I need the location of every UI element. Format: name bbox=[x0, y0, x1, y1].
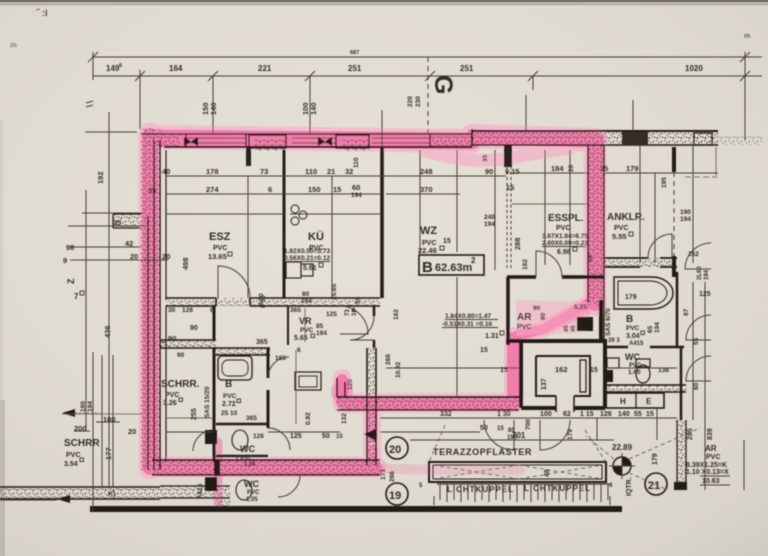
svg-text:PVC: PVC bbox=[300, 327, 314, 334]
svg-text:A615: A615 bbox=[197, 483, 204, 499]
svg-text:126: 126 bbox=[253, 433, 264, 440]
svg-text:194: 194 bbox=[87, 401, 94, 412]
svg-text:50: 50 bbox=[480, 425, 488, 432]
svg-text:15: 15 bbox=[590, 367, 598, 374]
svg-text:20: 20 bbox=[389, 444, 401, 456]
svg-text:90: 90 bbox=[190, 325, 198, 332]
svg-text:137: 137 bbox=[541, 378, 548, 390]
svg-text:42: 42 bbox=[125, 239, 133, 248]
svg-text:85: 85 bbox=[316, 323, 324, 330]
svg-text:6: 6 bbox=[119, 63, 122, 69]
svg-text:60: 60 bbox=[693, 382, 700, 390]
svg-text:73: 73 bbox=[345, 309, 351, 316]
svg-text:22.46: 22.46 bbox=[418, 246, 437, 255]
svg-text:TERAZZOPFLASTER: TERAZZOPFLASTER bbox=[433, 447, 532, 457]
svg-text:B: B bbox=[626, 314, 633, 325]
svg-text:WC: WC bbox=[244, 479, 259, 489]
svg-text:248: 248 bbox=[420, 167, 433, 176]
svg-text:195: 195 bbox=[661, 177, 668, 188]
svg-text:39 3: 39 3 bbox=[608, 338, 620, 344]
svg-text:15: 15 bbox=[480, 347, 488, 354]
svg-text:2.60X0.09=0.23: 2.60X0.09=0.23 bbox=[542, 240, 588, 247]
svg-text:3.04: 3.04 bbox=[626, 333, 640, 340]
svg-text:20: 20 bbox=[128, 427, 136, 436]
svg-text:251: 251 bbox=[348, 64, 362, 73]
svg-text:266: 266 bbox=[389, 471, 396, 482]
svg-text:126: 126 bbox=[600, 411, 612, 418]
svg-text:ESZ: ESZ bbox=[209, 231, 231, 243]
svg-text:251: 251 bbox=[460, 64, 474, 73]
svg-text:1.06: 1.06 bbox=[244, 462, 256, 468]
svg-text:E: E bbox=[646, 397, 652, 406]
svg-text:240: 240 bbox=[484, 214, 495, 221]
svg-text:16: 16 bbox=[352, 309, 358, 316]
svg-text:268: 268 bbox=[385, 354, 392, 365]
svg-text:WC: WC bbox=[240, 444, 255, 454]
svg-text:365: 365 bbox=[246, 415, 257, 422]
svg-text:ANKLR.: ANKLR. bbox=[607, 212, 645, 223]
svg-text:179: 179 bbox=[625, 294, 637, 301]
svg-text:3.54: 3.54 bbox=[64, 461, 78, 468]
svg-text:6: 6 bbox=[268, 185, 272, 194]
svg-text:179: 179 bbox=[567, 429, 574, 440]
svg-text:687: 687 bbox=[350, 50, 359, 56]
svg-text:184: 184 bbox=[551, 164, 564, 173]
svg-text:PVC: PVC bbox=[626, 325, 640, 332]
svg-text:125: 125 bbox=[290, 433, 302, 440]
svg-text:3.26: 3.26 bbox=[163, 400, 177, 407]
svg-text:700: 700 bbox=[525, 419, 532, 430]
svg-text:9: 9 bbox=[63, 256, 67, 265]
svg-text:90: 90 bbox=[168, 334, 176, 343]
svg-text:25: 25 bbox=[10, 43, 17, 49]
svg-text:1.31: 1.31 bbox=[485, 333, 499, 340]
svg-text:SCHRR.: SCHRR. bbox=[161, 379, 200, 390]
svg-text:5.55: 5.55 bbox=[612, 232, 627, 241]
svg-text:22.89: 22.89 bbox=[612, 443, 633, 452]
svg-text:100: 100 bbox=[540, 411, 552, 418]
svg-text:150: 150 bbox=[308, 185, 321, 194]
svg-text:40: 40 bbox=[162, 167, 170, 176]
svg-text:1.60: 1.60 bbox=[628, 369, 641, 376]
svg-text:7: 7 bbox=[74, 292, 79, 301]
svg-text:45: 45 bbox=[564, 325, 570, 332]
svg-text:6: 6 bbox=[297, 347, 301, 354]
svg-text:VR: VR bbox=[299, 316, 312, 326]
svg-text:10.92: 10.92 bbox=[395, 361, 402, 378]
svg-text:25: 25 bbox=[600, 164, 608, 173]
svg-text:2.72: 2.72 bbox=[222, 401, 236, 408]
svg-text:35: 35 bbox=[482, 154, 489, 162]
svg-text:125: 125 bbox=[326, 311, 337, 318]
svg-text:1.05: 1.05 bbox=[246, 497, 258, 503]
svg-text:2L60: 2L60 bbox=[697, 266, 703, 280]
svg-text:9.15: 9.15 bbox=[505, 167, 520, 176]
svg-text:1.84X0.80=1.47: 1.84X0.80=1.47 bbox=[445, 313, 491, 320]
svg-text:55: 55 bbox=[355, 296, 362, 304]
svg-text:1.10 X0.13=X: 1.10 X0.13=X bbox=[686, 469, 729, 476]
svg-text:PVC: PVC bbox=[223, 393, 237, 400]
svg-text:365: 365 bbox=[256, 339, 268, 346]
svg-text:20: 20 bbox=[130, 252, 138, 261]
svg-text:15: 15 bbox=[646, 411, 654, 418]
svg-text:8.50: 8.50 bbox=[258, 293, 265, 306]
svg-text:SAS 15/20: SAS 15/20 bbox=[204, 386, 211, 418]
svg-text:132: 132 bbox=[341, 413, 348, 424]
svg-text:1 30: 1 30 bbox=[497, 411, 511, 418]
svg-text:30: 30 bbox=[168, 307, 176, 314]
svg-text:194: 194 bbox=[316, 330, 327, 337]
svg-text:6.98: 6.98 bbox=[557, 249, 571, 256]
svg-text:179: 179 bbox=[626, 164, 639, 173]
svg-text:332: 332 bbox=[440, 411, 452, 418]
svg-text:1020: 1020 bbox=[685, 64, 703, 73]
svg-text:PVC: PVC bbox=[556, 225, 570, 232]
svg-text:B: B bbox=[225, 379, 232, 390]
svg-text:162: 162 bbox=[555, 365, 568, 374]
svg-text:140: 140 bbox=[309, 102, 318, 115]
svg-text:178: 178 bbox=[206, 167, 219, 176]
svg-text:90: 90 bbox=[177, 352, 185, 359]
svg-text:152: 152 bbox=[688, 251, 699, 258]
svg-text:5,25: 5,25 bbox=[574, 304, 587, 311]
svg-text:80: 80 bbox=[540, 312, 547, 320]
svg-text:K): K) bbox=[108, 491, 115, 498]
svg-text:839: 839 bbox=[707, 428, 714, 440]
svg-text:35: 35 bbox=[148, 186, 156, 195]
svg-text:182: 182 bbox=[393, 309, 400, 320]
svg-text:365: 365 bbox=[290, 307, 301, 314]
svg-text:PVC: PVC bbox=[706, 454, 720, 461]
svg-text:PVC: PVC bbox=[66, 452, 80, 459]
svg-text:WZ: WZ bbox=[420, 225, 437, 237]
svg-text:38: 38 bbox=[587, 254, 594, 262]
svg-text:80: 80 bbox=[302, 291, 310, 298]
svg-text:A415: A415 bbox=[629, 341, 644, 347]
svg-text:60: 60 bbox=[352, 183, 360, 192]
svg-text:AR: AR bbox=[517, 312, 532, 323]
svg-text:140: 140 bbox=[209, 102, 218, 115]
svg-text:15: 15 bbox=[333, 185, 341, 194]
svg-text:20: 20 bbox=[568, 164, 575, 172]
svg-text:98: 98 bbox=[66, 243, 74, 252]
svg-text:WC: WC bbox=[625, 352, 640, 362]
svg-text:15: 15 bbox=[336, 434, 343, 440]
svg-text:110: 110 bbox=[305, 167, 317, 176]
svg-text:Z: Z bbox=[66, 278, 76, 284]
svg-text:194: 194 bbox=[484, 221, 495, 228]
svg-text:45: 45 bbox=[571, 325, 577, 332]
svg-text:194: 194 bbox=[301, 298, 312, 305]
svg-text:73: 73 bbox=[260, 167, 268, 176]
svg-text:13.65: 13.65 bbox=[208, 252, 227, 261]
svg-text:87: 87 bbox=[683, 308, 690, 316]
svg-text:8.39X1.25=K: 8.39X1.25=K bbox=[686, 462, 727, 469]
svg-text:SCHRR: SCHRR bbox=[64, 438, 100, 449]
svg-text:B: B bbox=[422, 259, 433, 276]
svg-text:436: 436 bbox=[103, 325, 112, 338]
svg-text:90: 90 bbox=[533, 305, 541, 312]
svg-text:PVC: PVC bbox=[165, 392, 179, 399]
svg-text:85: 85 bbox=[508, 428, 515, 434]
svg-text:48: 48 bbox=[544, 469, 551, 477]
svg-text:21: 21 bbox=[327, 167, 335, 176]
svg-text:25.65: 25.65 bbox=[331, 283, 338, 300]
svg-text:165: 165 bbox=[275, 355, 286, 362]
svg-text:370: 370 bbox=[420, 185, 433, 194]
svg-text:PVC: PVC bbox=[247, 490, 260, 496]
svg-text:190: 190 bbox=[680, 209, 691, 216]
svg-text:140: 140 bbox=[618, 411, 630, 418]
svg-text:PVC: PVC bbox=[213, 245, 227, 252]
svg-text:192: 192 bbox=[96, 171, 105, 184]
svg-text:194: 194 bbox=[351, 192, 362, 199]
svg-text:173: 173 bbox=[380, 469, 387, 480]
svg-text:AR: AR bbox=[705, 444, 717, 453]
svg-text:221: 221 bbox=[258, 64, 272, 73]
svg-text::i: :i bbox=[42, 8, 48, 18]
svg-text:IQTR.: IQTR. bbox=[626, 477, 633, 496]
svg-text:0.56X0.21=0.12: 0.56X0.21=0.12 bbox=[284, 255, 330, 262]
svg-text:498: 498 bbox=[181, 257, 190, 270]
svg-text:180: 180 bbox=[80, 401, 87, 412]
svg-text:5.65: 5.65 bbox=[294, 335, 308, 342]
svg-text:-0.51X0.31 =0.16: -0.51X0.31 =0.16 bbox=[442, 321, 492, 328]
svg-text:SAS 6/70: SAS 6/70 bbox=[605, 308, 612, 336]
svg-text:194: 194 bbox=[507, 435, 518, 441]
svg-text:194: 194 bbox=[680, 216, 691, 223]
svg-text:PVC: PVC bbox=[614, 225, 628, 232]
svg-text:5.61: 5.61 bbox=[303, 265, 317, 272]
svg-text:230: 230 bbox=[415, 96, 422, 107]
svg-text:149: 149 bbox=[106, 64, 120, 73]
svg-text:65: 65 bbox=[647, 325, 654, 333]
svg-text:2: 2 bbox=[471, 256, 476, 265]
svg-text:19: 19 bbox=[389, 490, 401, 502]
svg-text:194: 194 bbox=[704, 269, 710, 280]
svg-text:125: 125 bbox=[699, 291, 711, 298]
svg-text:55: 55 bbox=[634, 411, 642, 418]
svg-text:220: 220 bbox=[407, 96, 414, 107]
svg-text:15: 15 bbox=[443, 238, 451, 245]
svg-text:288: 288 bbox=[513, 237, 522, 250]
svg-text:50: 50 bbox=[322, 433, 330, 440]
svg-text:194: 194 bbox=[654, 322, 661, 333]
svg-text:m: m bbox=[744, 33, 750, 40]
svg-text:6: 6 bbox=[210, 307, 214, 314]
svg-text:55: 55 bbox=[693, 337, 700, 345]
svg-text:H: H bbox=[620, 397, 626, 406]
svg-text:100: 100 bbox=[103, 415, 116, 424]
svg-text:177: 177 bbox=[104, 447, 113, 460]
svg-text:3.67X1.84=6.75: 3.67X1.84=6.75 bbox=[542, 233, 588, 240]
svg-text:285: 285 bbox=[687, 428, 694, 440]
svg-text:0.92: 0.92 bbox=[305, 412, 312, 425]
svg-text:20: 20 bbox=[162, 252, 170, 261]
svg-text:35: 35 bbox=[113, 218, 121, 227]
svg-text:90: 90 bbox=[485, 167, 493, 176]
svg-text:182: 182 bbox=[522, 259, 529, 270]
svg-text:15: 15 bbox=[497, 426, 504, 432]
svg-text:1.82X0.50=5.73: 1.82X0.50=5.73 bbox=[284, 248, 330, 255]
svg-text:ESSPL.: ESSPL. bbox=[548, 213, 584, 224]
svg-text:200: 200 bbox=[74, 424, 87, 433]
svg-text:164: 164 bbox=[169, 64, 183, 73]
svg-text:KÜ: KÜ bbox=[308, 230, 324, 243]
svg-text:110: 110 bbox=[353, 157, 360, 168]
svg-text:1 15: 1 15 bbox=[580, 411, 594, 418]
svg-text:15: 15 bbox=[506, 183, 514, 192]
svg-text:LICHTKUPPEL: LICHTKUPPEL bbox=[524, 484, 591, 493]
svg-text:PVC: PVC bbox=[517, 324, 531, 331]
svg-text:62.63m: 62.63m bbox=[435, 262, 473, 274]
svg-text:25 10: 25 10 bbox=[221, 410, 238, 417]
svg-text:62: 62 bbox=[563, 411, 571, 418]
svg-text:LICHTKUPPEL: LICHTKUPPEL bbox=[447, 485, 514, 494]
svg-text:128: 128 bbox=[182, 307, 193, 314]
svg-text:15: 15 bbox=[500, 367, 508, 374]
svg-text:274: 274 bbox=[206, 185, 219, 194]
svg-text:120: 120 bbox=[347, 379, 354, 390]
svg-text:G: G bbox=[429, 75, 457, 94]
svg-text:179: 179 bbox=[652, 453, 659, 465]
